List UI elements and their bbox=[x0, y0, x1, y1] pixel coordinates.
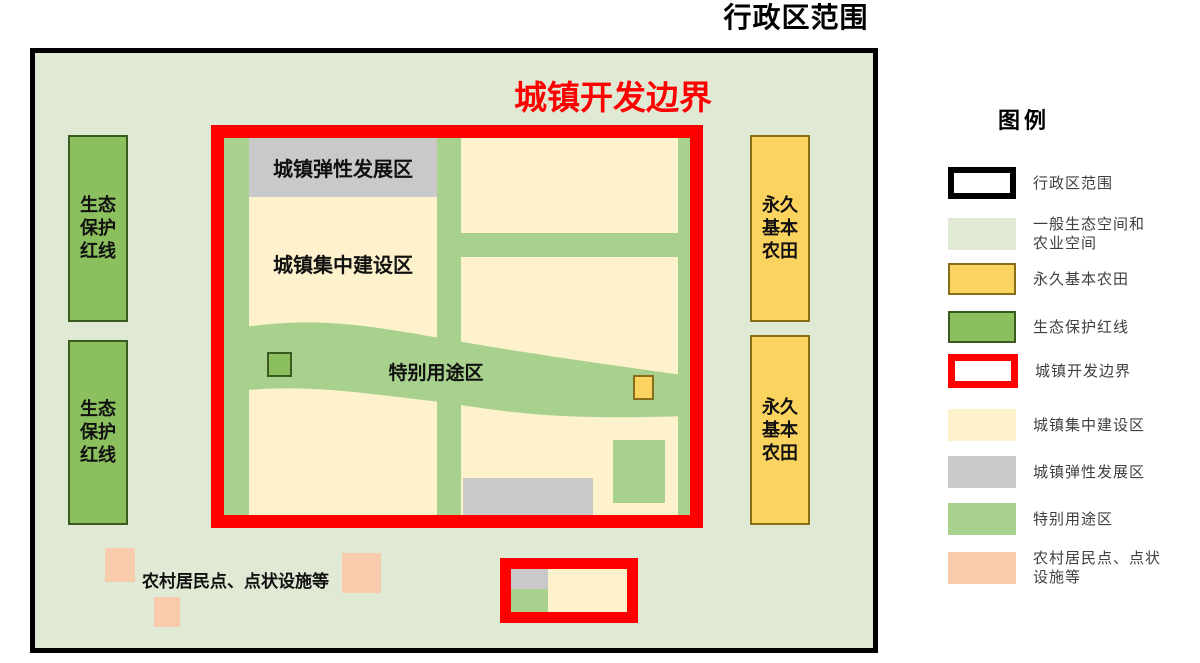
legend-item-eco-protection-redline: 生态保护红线 bbox=[948, 311, 1129, 343]
ugb-title: 城镇开发边界 bbox=[412, 78, 712, 118]
rural-settlement-square-3 bbox=[154, 597, 180, 627]
legend-label: 行政区范围 bbox=[1033, 174, 1113, 193]
eco-redline-rect-top: 生态 保护 红线 bbox=[68, 135, 128, 322]
ugb-detached-special-square bbox=[511, 589, 548, 612]
eco-space-swatch bbox=[948, 218, 1016, 250]
eco-redline-swatch bbox=[948, 311, 1016, 343]
legend-label: 农村居民点、点状设施等 bbox=[1033, 549, 1161, 587]
legend-label: 生态保护红线 bbox=[1033, 318, 1129, 337]
elastic-development-strip bbox=[463, 478, 593, 515]
ugb-swatch bbox=[948, 354, 1018, 388]
legend-item-general-eco-agri-space: 一般生态空间和农业空间 bbox=[948, 215, 1145, 253]
legend-label: 城镇集中建设区 bbox=[1033, 416, 1145, 435]
elastic-swatch bbox=[948, 456, 1016, 488]
legend-item-urban-development-boundary: 城镇开发边界 bbox=[948, 354, 1131, 388]
urban-development-boundary: 城镇弹性发展区 城镇集中建设区 特别用途区 bbox=[211, 125, 703, 528]
eco-redline-rect-bottom: 生态 保护 红线 bbox=[68, 340, 128, 525]
eco-redline-label: 生态 保护 红线 bbox=[80, 194, 116, 263]
farmland-square-small bbox=[633, 375, 654, 400]
rural-swatch bbox=[948, 552, 1016, 584]
legend-item-permanent-basic-farmland: 永久基本农田 bbox=[948, 263, 1129, 295]
rural-settlement-square-2 bbox=[342, 553, 381, 593]
ugb-detached-elastic-square bbox=[511, 569, 548, 589]
rural-settlement-label: 农村居民点、点状设施等 bbox=[142, 572, 329, 592]
special-use-zone-label: 特别用途区 bbox=[336, 358, 536, 384]
admin-swatch bbox=[948, 167, 1016, 199]
farmland-rect-bottom: 永久 基本 农田 bbox=[750, 335, 810, 525]
farmland-label: 永久 基本 农田 bbox=[762, 194, 798, 263]
special-use-square-large bbox=[613, 440, 665, 503]
farmland-rect-top: 永久 基本 农田 bbox=[750, 135, 810, 322]
legend-label: 城镇弹性发展区 bbox=[1033, 463, 1145, 482]
concentrated-zone-label: 城镇集中建设区 bbox=[249, 243, 437, 283]
legend-item-admin-region: 行政区范围 bbox=[948, 167, 1113, 199]
legend-item-urban-concentrated-construction: 城镇集中建设区 bbox=[948, 409, 1145, 441]
legend-label: 城镇开发边界 bbox=[1035, 362, 1131, 381]
planning-diagram: 行政区范围 生态 保护 红线 生态 保护 红线 永久 基本 农田 永久 基本 农… bbox=[0, 0, 1200, 663]
eco-redline-label: 生态 保护 红线 bbox=[80, 398, 116, 467]
farmland-swatch bbox=[948, 263, 1016, 295]
legend-label: 永久基本农田 bbox=[1033, 270, 1129, 289]
legend-title: 图例 bbox=[998, 106, 1068, 136]
legend-label: 特别用途区 bbox=[1033, 510, 1113, 529]
admin-region-title: 行政区范围 bbox=[706, 0, 886, 36]
ugb-detached-area bbox=[500, 558, 638, 623]
special-swatch bbox=[948, 503, 1016, 535]
eco-redline-square-small bbox=[267, 352, 292, 377]
rural-settlement-square-1 bbox=[105, 548, 135, 582]
legend-item-special-use-area: 特别用途区 bbox=[948, 503, 1113, 535]
legend-item-rural-settlements-point-facilities: 农村居民点、点状设施等 bbox=[948, 549, 1161, 587]
legend-item-urban-elastic-development: 城镇弹性发展区 bbox=[948, 456, 1145, 488]
legend-label: 一般生态空间和农业空间 bbox=[1033, 215, 1145, 253]
elastic-zone-label: 城镇弹性发展区 bbox=[249, 138, 437, 197]
concentrated-swatch bbox=[948, 409, 1016, 441]
farmland-label: 永久 基本 农田 bbox=[762, 396, 798, 465]
